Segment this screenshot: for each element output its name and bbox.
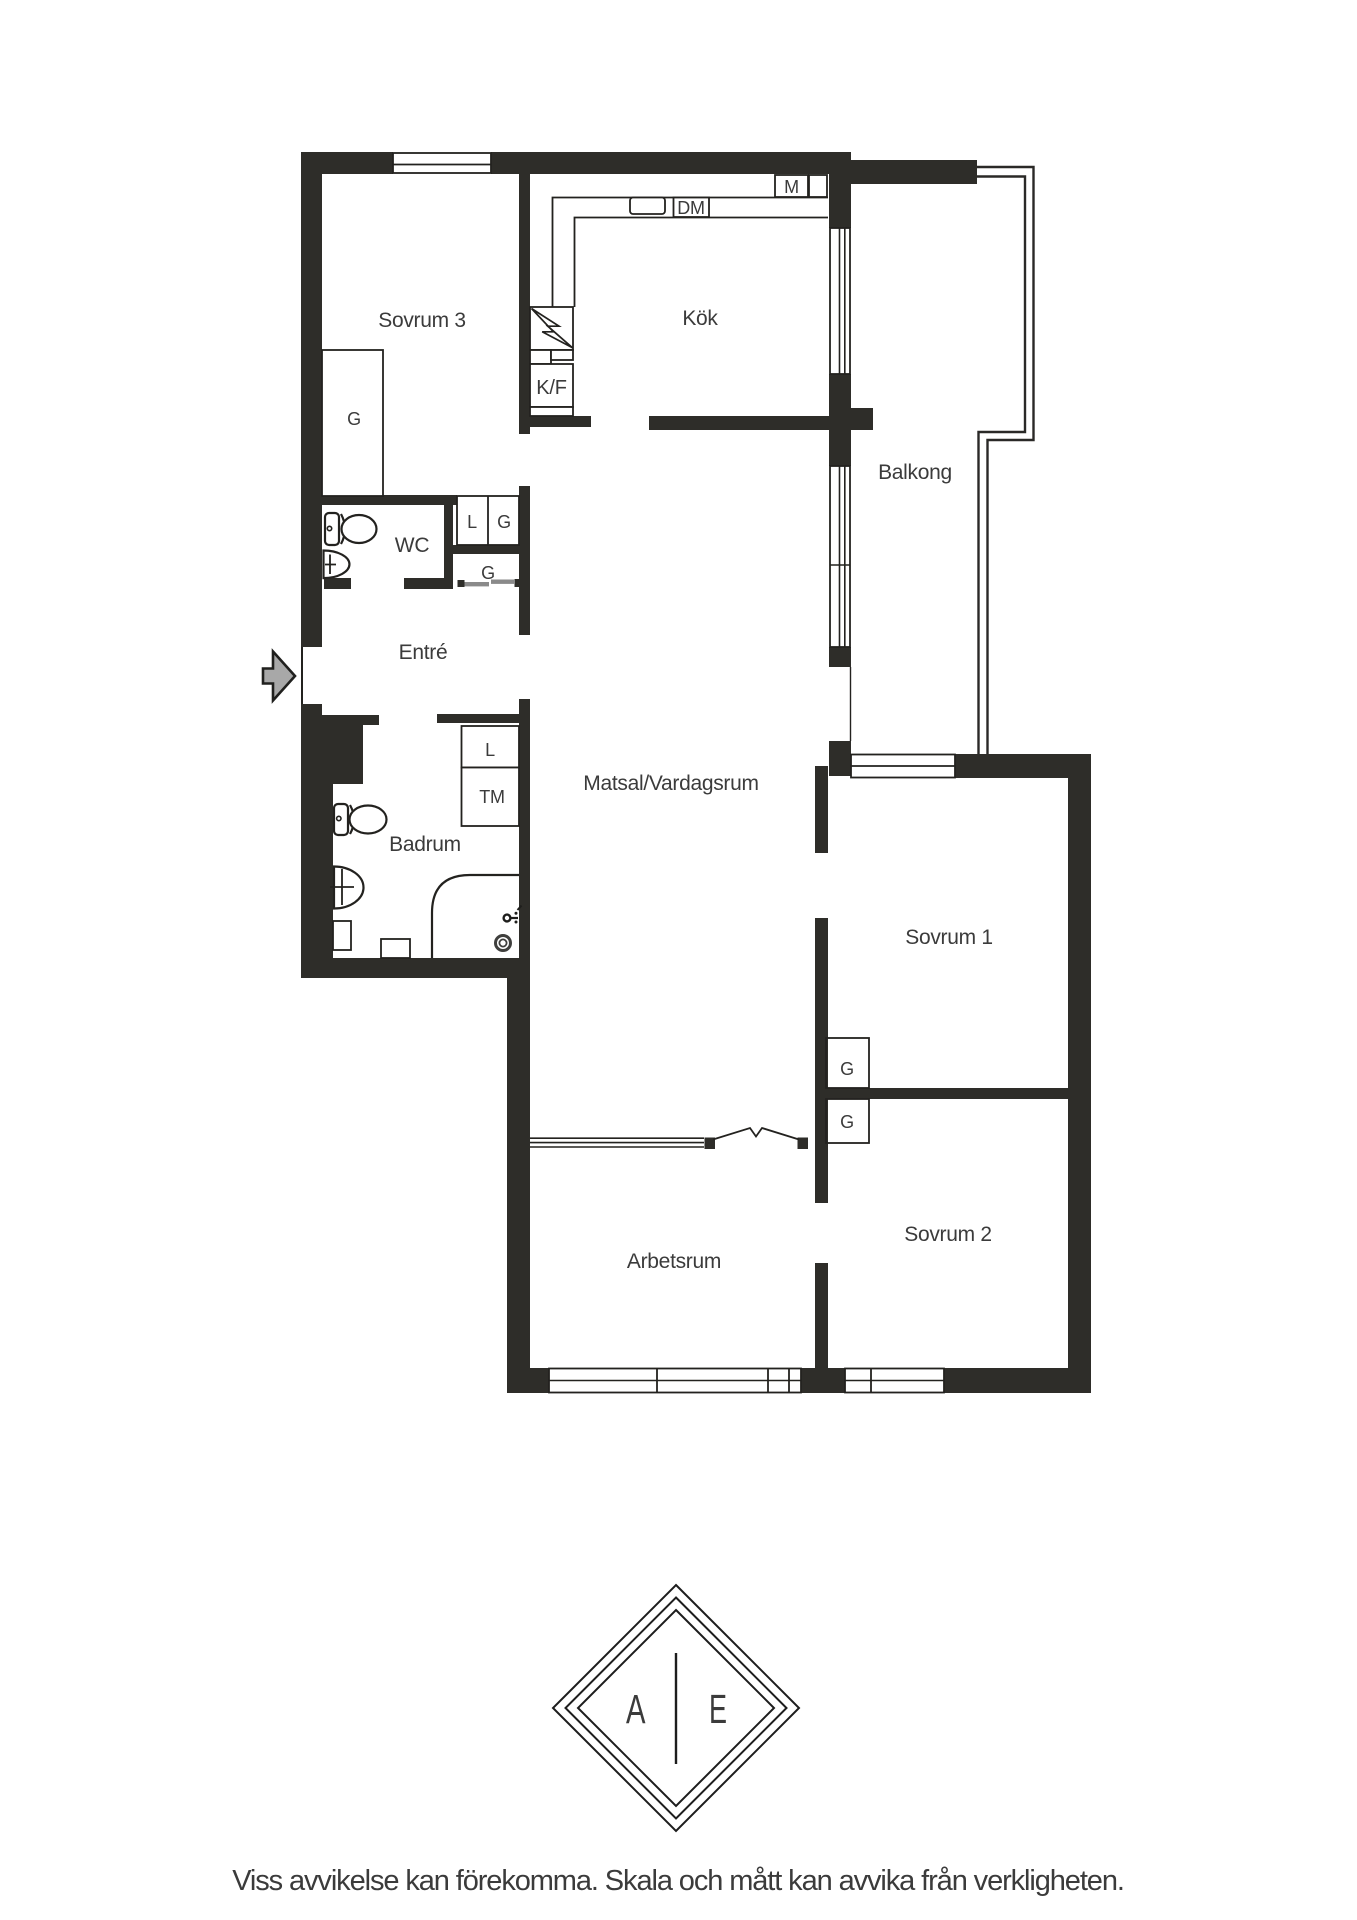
svg-text:E: E	[709, 1686, 727, 1732]
svg-text:G: G	[840, 1059, 854, 1079]
svg-text:WC: WC	[395, 534, 430, 557]
svg-text:G: G	[497, 512, 511, 532]
svg-text:G: G	[840, 1112, 854, 1132]
svg-text:Matsal/Vardagsrum: Matsal/Vardagsrum	[583, 772, 758, 795]
svg-text:Entré: Entré	[399, 641, 448, 664]
svg-text:Sovrum 2: Sovrum 2	[904, 1223, 991, 1246]
svg-text:L: L	[467, 512, 477, 532]
svg-text:A: A	[626, 1686, 646, 1732]
svg-text:M: M	[784, 177, 799, 197]
svg-text:Badrum: Badrum	[389, 833, 461, 856]
svg-text:Kök: Kök	[682, 307, 718, 330]
svg-text:Viss avvikelse kan förekomma.: Viss avvikelse kan förekomma. Skala och …	[232, 1865, 1124, 1897]
svg-text:G: G	[347, 409, 361, 429]
svg-text:Sovrum 1: Sovrum 1	[905, 926, 992, 949]
svg-text:Sovrum 3: Sovrum 3	[378, 309, 465, 332]
svg-text:TM: TM	[479, 787, 505, 807]
svg-text:Arbetsrum: Arbetsrum	[627, 1250, 721, 1273]
svg-text:K/F: K/F	[536, 377, 567, 399]
svg-text:Balkong: Balkong	[878, 461, 952, 484]
svg-text:L: L	[485, 740, 495, 760]
svg-text:DM: DM	[677, 198, 705, 218]
